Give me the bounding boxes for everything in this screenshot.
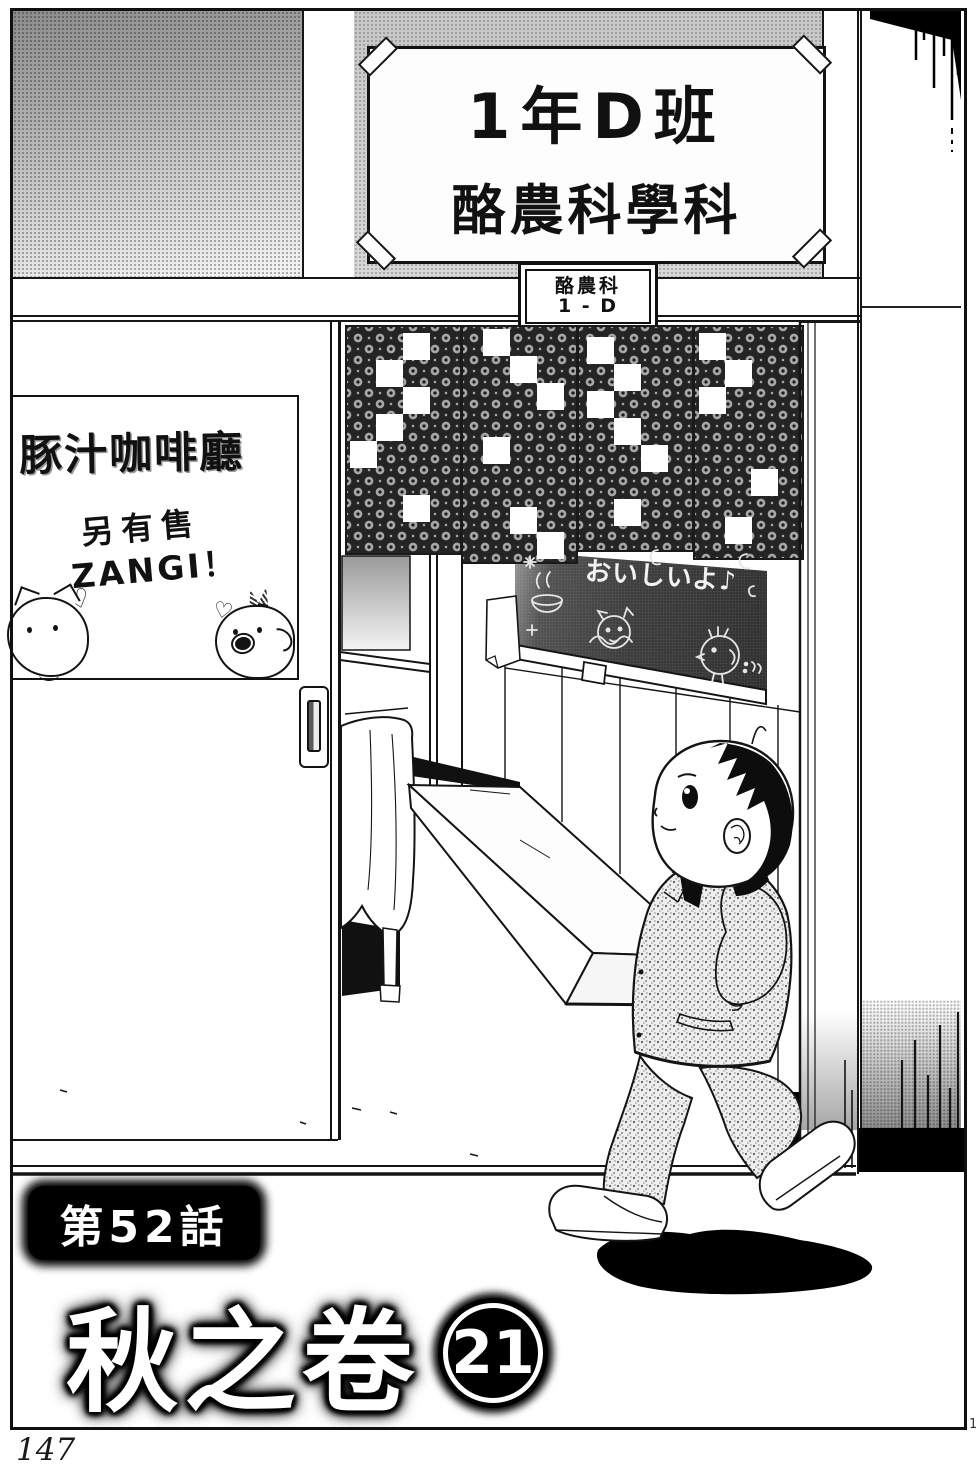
- pig-eye: [53, 625, 58, 631]
- episode-number: 21: [451, 1318, 535, 1388]
- noren-curtain-panel: [693, 325, 804, 560]
- episode-title: 秋之卷 21: [66, 1272, 548, 1434]
- door-handle: [299, 686, 329, 768]
- noren-curtain-panel: [577, 325, 694, 552]
- page-number: 147: [16, 1432, 75, 1468]
- classroom-sign-line2: 酪農科學科: [452, 166, 742, 245]
- pig-face-doodle: [5, 585, 91, 677]
- poster-title: 豚汁咖啡廳: [18, 417, 289, 484]
- right-wall-seam: [862, 306, 961, 308]
- door-plate: 酪農科 1 - D: [518, 262, 658, 331]
- page-corner-mark: 1: [969, 1417, 977, 1432]
- left-wall-shaded: [13, 11, 302, 277]
- chapter-badge: 第52話: [28, 1186, 260, 1260]
- episode-number-circle: 21: [438, 1298, 548, 1408]
- floor-shadow: [597, 1230, 872, 1295]
- doorframe-shadow-gradient: [800, 1010, 858, 1130]
- boy-front-slipper: [549, 1186, 667, 1241]
- chapter-label: 第52話: [59, 1191, 228, 1255]
- door-plate-inner: 酪農科 1 - D: [525, 269, 651, 324]
- lintel-line: [13, 315, 860, 317]
- chick-eye: [257, 627, 262, 633]
- pig-eye: [27, 627, 32, 633]
- right-wall: [860, 11, 963, 1172]
- noren-curtain-panel: [461, 325, 578, 564]
- classroom-sign: 1年D班 酪農科學科: [367, 46, 826, 264]
- noren-curtain-panel: [345, 325, 462, 555]
- pig-head: [7, 597, 89, 677]
- pig-leg: [39, 669, 59, 681]
- door-plate-line1: 酪農科: [555, 277, 621, 297]
- door-handle-slot: [307, 700, 321, 752]
- cafe-poster: 豚汁咖啡廳 另有售 ZANGI！ ♡ ♡: [13, 395, 299, 680]
- left-wall-post: [302, 11, 356, 277]
- chick-eye: [233, 629, 238, 635]
- right-wall-shadow-gradient: [862, 1000, 961, 1130]
- classroom-sign-line1: 1年D班: [467, 66, 726, 156]
- episode-title-text: 秋之卷: [66, 1272, 420, 1434]
- chick-doodle: [209, 591, 297, 677]
- door-plate-line2: 1 - D: [558, 297, 618, 317]
- chick-crest: [257, 586, 271, 607]
- manga-page: 1年D班 酪農科學科 豚汁咖啡廳 另有售 ZANGI！ ♡ ♡: [0, 0, 980, 1474]
- door-edge-line: [330, 322, 332, 1140]
